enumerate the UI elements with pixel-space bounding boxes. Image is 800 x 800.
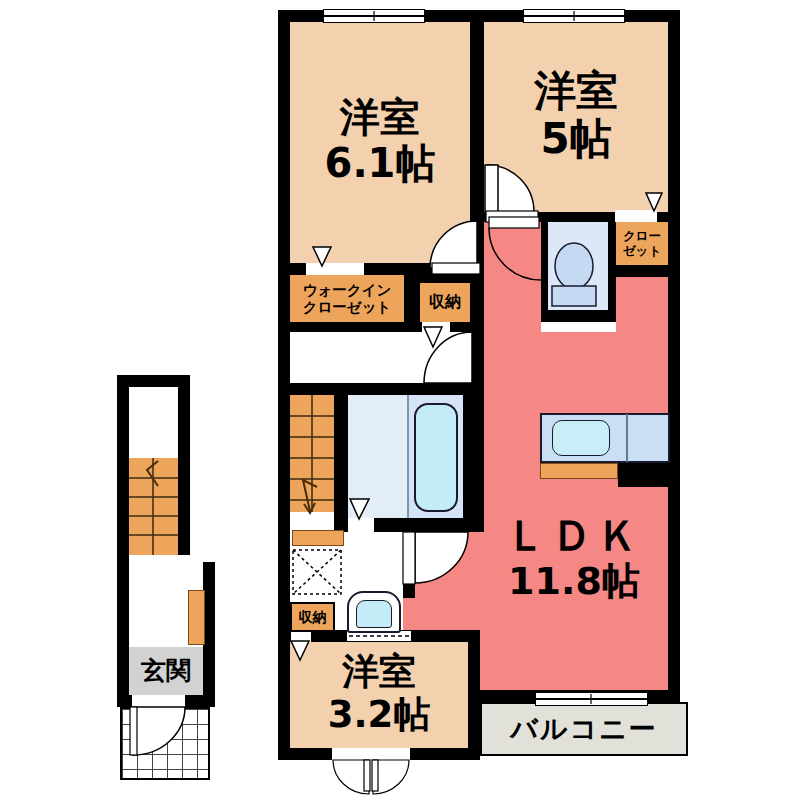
- wall-stairs-east: [334, 395, 348, 532]
- opening-wic: [306, 263, 364, 275]
- label-walk-in-closet: ウォークイン クローゼット: [290, 275, 404, 322]
- room-ldk-west-strip: [415, 532, 484, 598]
- room-name: 収納: [429, 293, 461, 311]
- wall-bedroom-divider: [470, 22, 484, 212]
- entrance-porch: [120, 707, 210, 780]
- wall-toilet-west: [541, 212, 548, 310]
- ent-landing-upper: [129, 387, 178, 458]
- door-arc-32-left: [333, 760, 369, 794]
- wall-toilet-bottom: [541, 310, 616, 322]
- room-name: バルコニー: [510, 713, 658, 744]
- ent-wall-right-upper: [178, 375, 190, 568]
- wall-32-east: [468, 630, 480, 760]
- floor-plan: 洋室 6.1帖 洋室 5帖 ＬＤＫ 11.8帖 洋室 3.2帖 ウォークイン ク…: [0, 0, 800, 800]
- shoe-cabinet: [188, 590, 205, 645]
- room-name: ＬＤＫ: [505, 512, 643, 560]
- wall-hall-bottom: [278, 383, 484, 395]
- room-hallway: [290, 332, 472, 383]
- opening-bath-door: [348, 518, 374, 532]
- room-name-line2: ゼット: [623, 244, 661, 258]
- stairs-unit: [290, 395, 334, 512]
- room-size: 5帖: [540, 115, 611, 163]
- room-name: 洋室: [340, 94, 420, 140]
- bathtub: [414, 403, 458, 512]
- label-western-5: 洋室 5帖: [484, 35, 668, 195]
- room-name-line1: ウォークイン: [303, 282, 392, 299]
- wall-wic-storage: [404, 275, 420, 322]
- opening-closet: [615, 210, 657, 222]
- wall-wic-bottom: [278, 322, 484, 332]
- kitchen-cabinet: [540, 463, 618, 479]
- ent-wall-left: [117, 375, 129, 707]
- window-west-6-1: [323, 9, 425, 23]
- label-storage-hall: 収納: [420, 283, 470, 322]
- room-size: 6.1帖: [325, 140, 436, 186]
- room-ldk-corridor: [484, 222, 541, 332]
- room-ldk-west-strip2: [403, 598, 484, 630]
- label-ldk: ＬＤＫ 11.8帖: [480, 500, 668, 615]
- room-name: 玄関: [141, 657, 191, 686]
- label-storage-washroom: 収納: [290, 602, 335, 632]
- wall-closet-bottom: [608, 265, 680, 277]
- door-leaf-32-right: [372, 760, 378, 791]
- kitchen-counter-divider: [626, 414, 628, 462]
- room-toilet: [548, 222, 608, 310]
- stairs-entrance: [129, 458, 178, 555]
- label-closet: クロー ゼット: [616, 222, 668, 265]
- opening-entrance-door: [132, 695, 185, 707]
- wall-washroom-east: [403, 532, 415, 598]
- label-entrance: 玄関: [129, 647, 203, 695]
- room-name-line2: クローゼット: [303, 299, 392, 316]
- wall-kitchen-end: [618, 463, 672, 487]
- room-size: 11.8帖: [508, 560, 640, 604]
- label-western-3-2: 洋室 3.2帖: [290, 642, 468, 746]
- room-name: 収納: [299, 609, 327, 625]
- opening-32-doors: [332, 748, 410, 760]
- room-name: 洋室: [534, 67, 618, 115]
- window-west-5: [523, 9, 625, 23]
- door-arc-32-right: [373, 760, 409, 794]
- label-western-6-1: 洋室 6.1帖: [290, 60, 470, 220]
- room-name-line1: クロー: [623, 229, 661, 243]
- label-balcony: バルコニー: [480, 702, 688, 756]
- opening-storage-hall: [422, 322, 450, 332]
- door-leaf-32-left: [364, 760, 370, 791]
- kitchen-sink: [552, 420, 610, 456]
- washbasin-bowl: [356, 600, 392, 628]
- washroom-shelf: [292, 530, 344, 546]
- room-name: 洋室: [342, 651, 416, 694]
- wall-storage-top: [420, 275, 470, 283]
- room-bath-left: [348, 395, 408, 518]
- wall-right: [668, 10, 680, 702]
- wall-corridor-west: [470, 212, 484, 395]
- room-size: 3.2帖: [328, 694, 431, 737]
- room-ldk-east: [616, 277, 668, 332]
